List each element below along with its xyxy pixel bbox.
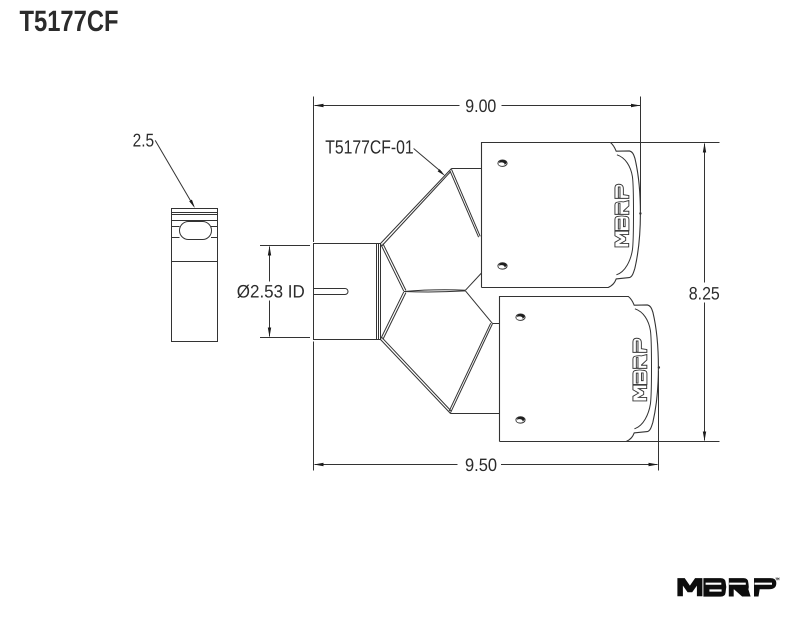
svg-text:T5177CF: T5177CF	[20, 5, 119, 38]
svg-text:Ø2.53 ID: Ø2.53 ID	[237, 282, 305, 302]
svg-text:9.50: 9.50	[465, 455, 497, 475]
svg-text:2.5: 2.5	[133, 129, 155, 150]
svg-text:8.25: 8.25	[689, 283, 720, 303]
svg-text:9.00: 9.00	[465, 96, 496, 116]
svg-text:T5177CF-01: T5177CF-01	[325, 137, 414, 158]
